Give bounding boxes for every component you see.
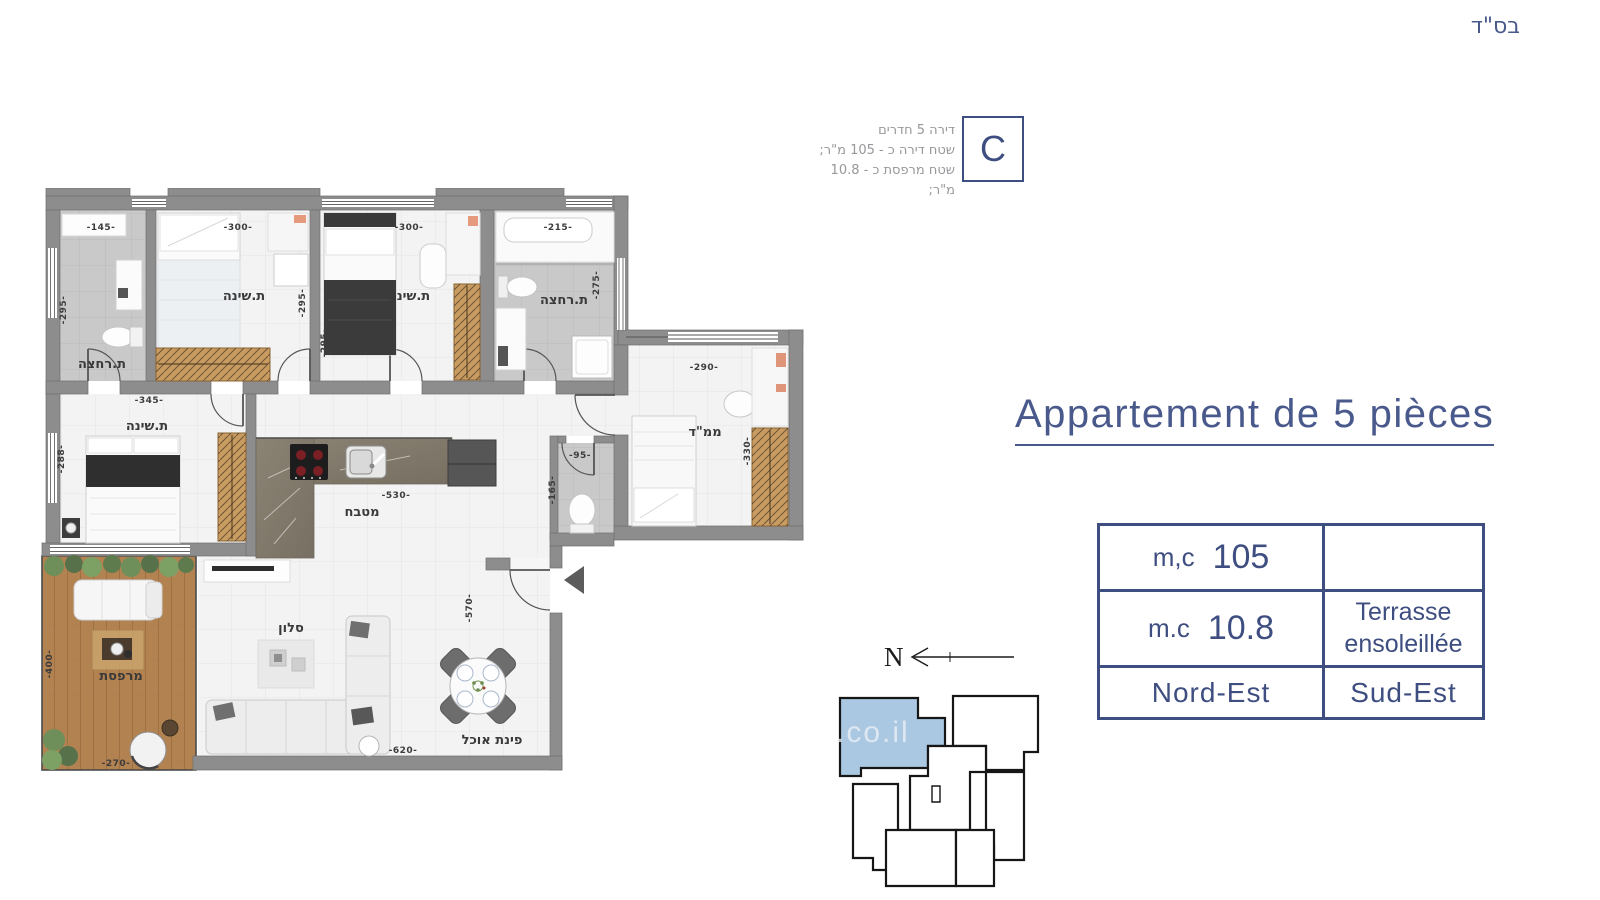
info-line-area: שטח דירה כ - 105 מ"ר; [815, 141, 955, 161]
terrace-desc-line2: ensoleillée [1344, 629, 1462, 660]
label-terrace: מרפסת [99, 669, 143, 684]
orientation2: Sud-Est [1350, 677, 1457, 709]
label-bedroom3: ת.שינה [126, 419, 168, 434]
wc-fixtures [569, 494, 595, 533]
dim-bed2-h: -295- [320, 329, 330, 358]
unit-letter-box: C [962, 116, 1024, 182]
entrance-arrow-icon [564, 566, 584, 594]
watermark: .co.il [836, 716, 910, 749]
table-cell-terrace-area: m.c 10.8 [1100, 589, 1322, 665]
dim-terrace-w: -270- [102, 759, 131, 769]
floor-plan: ת.רחצה ת.שינה ת.שינה ת.רחצה ת.שינה ממ"ד … [28, 188, 808, 790]
bedroom3-furniture [62, 433, 246, 543]
dim-kitchen-w: -530- [382, 491, 411, 501]
dim-mamad-w: -290- [690, 363, 719, 373]
dim-bed3-h: -288- [57, 445, 67, 474]
dim-bath1-h: -295- [59, 296, 69, 325]
north-label: N [884, 642, 904, 672]
north-compass: N [872, 636, 1022, 678]
apartment-info-block: דירה 5 חדרים שטח דירה כ - 105 מ"ר; שטח מ… [815, 121, 955, 202]
table-cell-empty [1322, 526, 1482, 589]
label-dining: פינת אוכל [462, 733, 523, 748]
area-value: 105 [1213, 538, 1270, 577]
dim-wc-w: -95- [569, 451, 591, 461]
spec-table: m,c 105 m.c 10.8 Terrasse ensoleillée No… [1097, 523, 1485, 720]
table-cell-orientation2: Sud-Est [1322, 665, 1482, 717]
north-arrow-icon [912, 648, 1014, 666]
unit-letter: C [980, 128, 1006, 170]
dim-bath2-w: -215- [544, 223, 573, 233]
dim-bed1-w: -300- [224, 223, 253, 233]
dim-bed3-w: -345- [135, 396, 164, 406]
key-plan-detail [932, 786, 940, 802]
page: בס"ד דירה 5 חדרים שטח דירה כ - 105 מ"ר; … [0, 0, 1600, 900]
orientation1: Nord-Est [1152, 677, 1270, 709]
table-cell-area: m,c 105 [1100, 526, 1322, 589]
dim-bath2-h: -275- [592, 271, 602, 300]
info-line-rooms: דירה 5 חדרים [815, 121, 955, 141]
label-bedroom2: ת.שינה [388, 289, 430, 304]
terrace-area-value: 10.8 [1208, 609, 1274, 648]
dim-terrace-h: -400- [45, 650, 55, 679]
table-cell-terrace-desc: Terrasse ensoleillée [1322, 589, 1482, 665]
label-bedroom1: ת.שינה [223, 289, 265, 304]
dim-bed2-w: -300- [395, 223, 424, 233]
key-plan-unit-bm [886, 830, 956, 886]
label-bathroom1: ת.רחצה [78, 357, 126, 372]
table-cell-orientation1: Nord-Est [1100, 665, 1322, 717]
dim-living-w: -620- [389, 746, 418, 756]
dim-living-h: -570- [465, 594, 475, 623]
dim-bed1-h: -295- [298, 289, 308, 318]
dim-bath1-w: -145- [87, 223, 116, 233]
dim-wc-h: -165- [548, 476, 558, 505]
info-line-terrace: שטח מרפסת כ - 10.8 מ"ר; [815, 161, 955, 201]
key-plan: .co.il [828, 690, 1043, 888]
label-salon: סלון [278, 621, 304, 636]
terrace-desc-line1: Terrasse [1344, 597, 1462, 628]
page-title: Appartement de 5 pièces [1015, 392, 1494, 446]
label-kitchen: מטבח [344, 505, 379, 520]
dim-mamad-h: -330- [743, 437, 753, 466]
label-mamad: ממ"ד [688, 425, 721, 440]
dining-set [438, 646, 519, 727]
terrace-area-label: m.c [1148, 613, 1190, 644]
label-bathroom2: ת.רחצה [540, 293, 588, 308]
key-plan-unit-bm2 [956, 830, 994, 886]
bsd-text: בס"ד [1420, 14, 1520, 39]
area-label: m,c [1153, 542, 1195, 573]
